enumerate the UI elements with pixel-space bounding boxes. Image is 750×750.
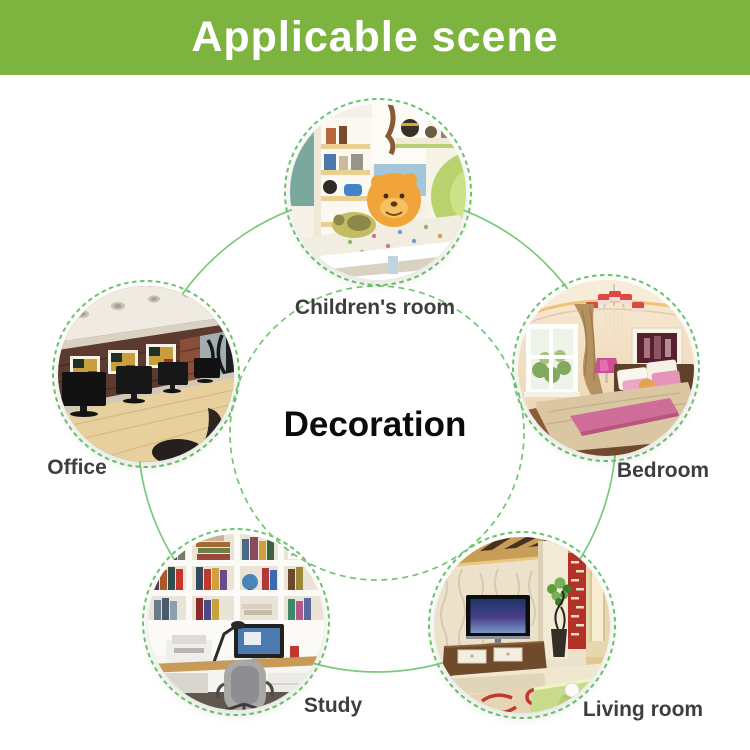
scene-circle-bedroom	[518, 280, 694, 456]
office-photo	[58, 286, 234, 462]
study-photo	[148, 534, 324, 710]
scene-label-bedroom: Bedroom	[617, 459, 709, 483]
bedroom-photo	[518, 280, 694, 456]
scene-label-childrens-room: Children's room	[295, 296, 455, 320]
scene-label-office: Office	[47, 456, 107, 480]
scene-label-living-room: Living room	[583, 698, 703, 722]
living-room-photo	[434, 537, 610, 713]
center-label: Decoration	[284, 405, 467, 445]
scene-circle-office	[58, 286, 234, 462]
page: Applicable scene	[0, 0, 750, 750]
scene-label-study: Study	[304, 694, 362, 718]
scene-circle-study	[148, 534, 324, 710]
childrens-room-photo	[290, 104, 466, 280]
scene-circle-living-room	[434, 537, 610, 713]
scene-circle-childrens-room	[290, 104, 466, 280]
